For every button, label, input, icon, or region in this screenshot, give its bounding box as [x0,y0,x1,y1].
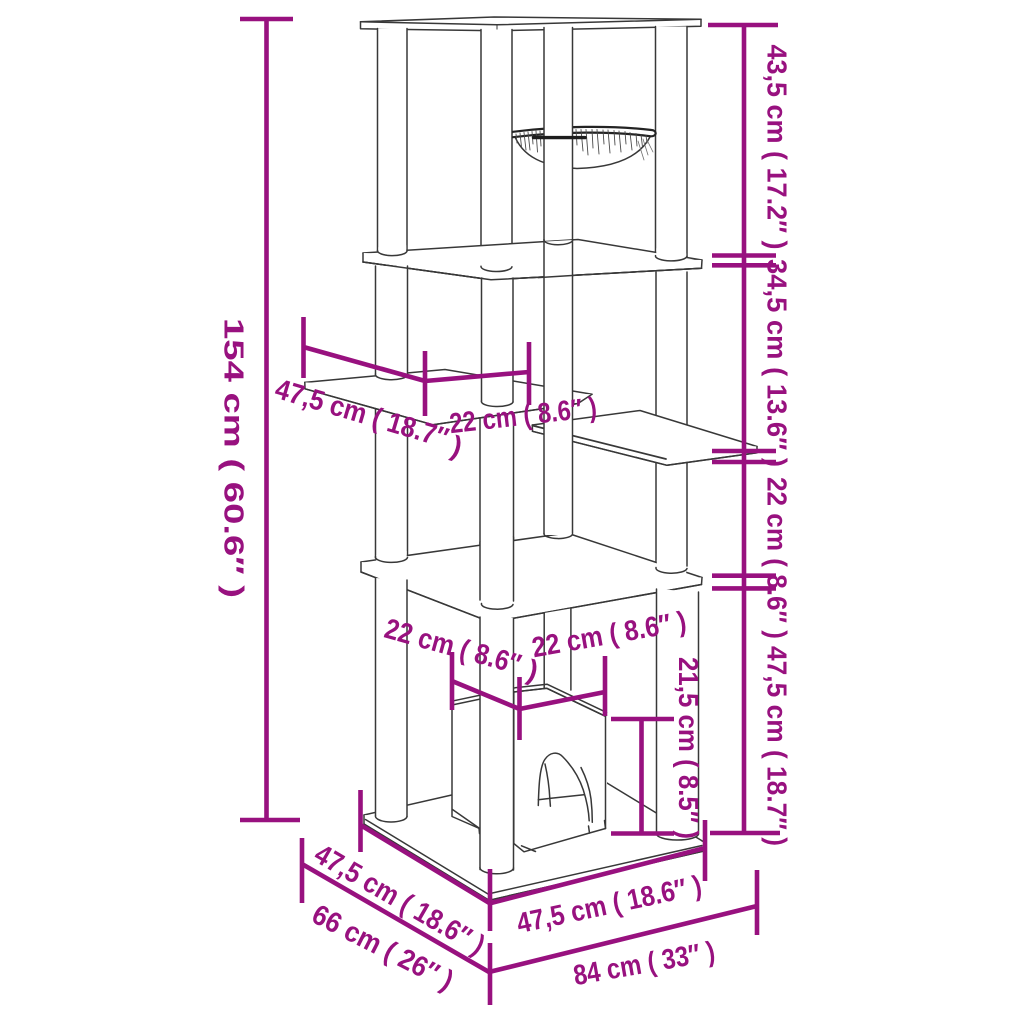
svg-text:154 cm ( 60.6″ ): 154 cm ( 60.6″ ) [218,318,249,598]
svg-text:47,5 cm ( 18.7″ ): 47,5 cm ( 18.7″ ) [761,646,792,846]
svg-text:22 cm ( 8.6″ ): 22 cm ( 8.6″ ) [761,477,792,639]
svg-text:43,5 cm ( 17.2″ ): 43,5 cm ( 17.2″ ) [761,45,792,250]
svg-text:34,5 cm ( 13.6″ ): 34,5 cm ( 13.6″ ) [761,259,792,467]
svg-text:21,5 cm ( 8.5″ ): 21,5 cm ( 8.5″ ) [673,657,704,839]
